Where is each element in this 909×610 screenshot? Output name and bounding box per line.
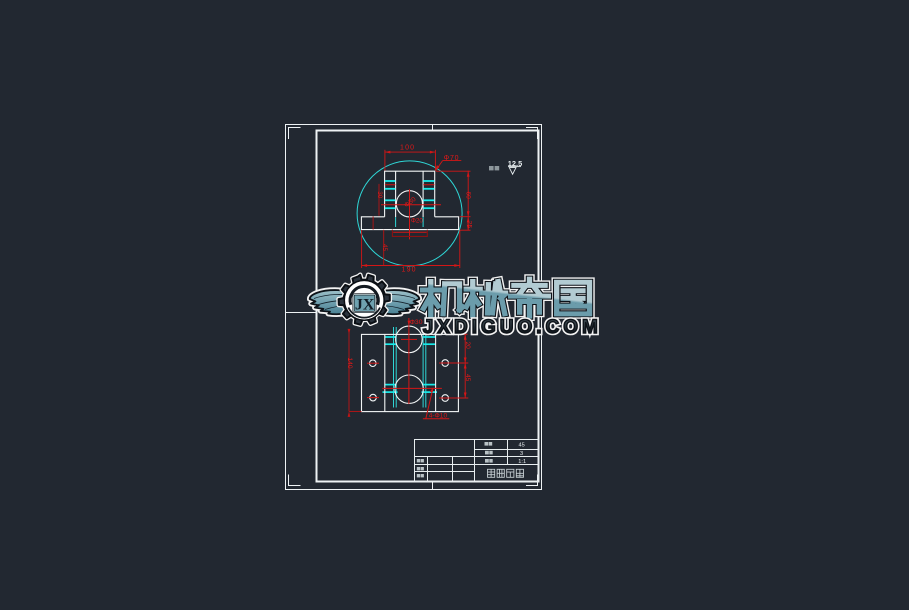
svg-text:140: 140 [346,358,353,369]
svg-text:25: 25 [465,221,472,229]
svg-text:45: 45 [519,442,525,448]
svg-text:45: 45 [464,374,471,382]
svg-text:4-Φ10: 4-Φ10 [429,413,448,420]
svg-text:JXDIGUO.COM: JXDIGUO.COM [423,317,602,338]
svg-text:Φ30: Φ30 [410,319,423,326]
svg-text:45: 45 [381,244,388,252]
svg-text:100: 100 [400,144,415,151]
svg-text:190: 190 [402,267,417,274]
svg-text:60: 60 [465,192,472,200]
svg-text:JX: JX [355,297,375,314]
svg-text:20: 20 [464,342,471,350]
svg-text:3: 3 [520,451,523,457]
svg-text:Φ20: Φ20 [411,218,423,225]
svg-text:1:1: 1:1 [518,459,526,465]
svg-text:30: 30 [376,191,383,199]
